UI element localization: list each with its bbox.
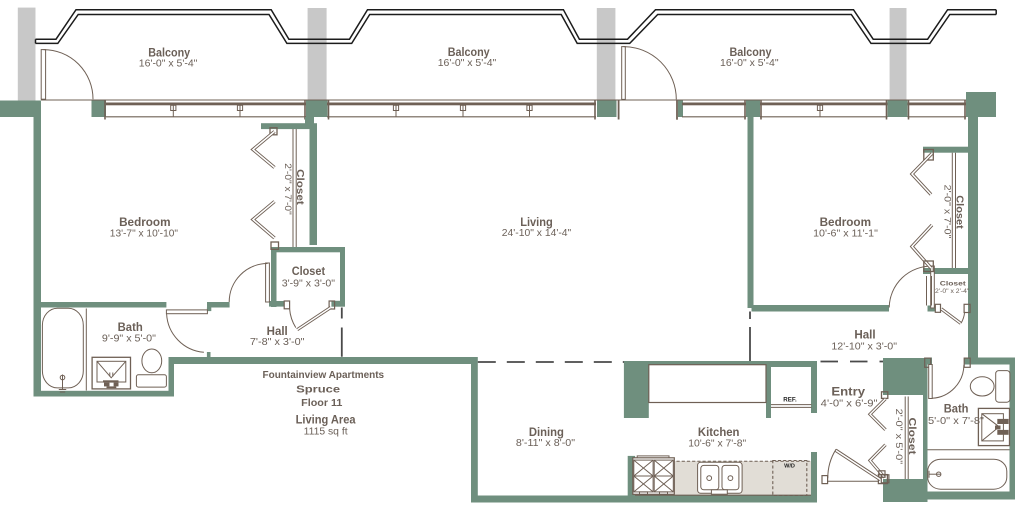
svg-text:5'-0" x 7'-8": 5'-0" x 7'-8" [928, 415, 984, 427]
svg-text:Closet: Closet [906, 418, 917, 456]
svg-text:Closet: Closet [294, 169, 305, 205]
svg-text:Living Area: Living Area [296, 413, 356, 427]
svg-text:1115 sq ft: 1115 sq ft [304, 427, 348, 438]
svg-text:24'-10" x 14'-4": 24'-10" x 14'-4" [502, 227, 572, 239]
svg-text:3'-9" x 3'-0": 3'-9" x 3'-0" [282, 277, 336, 289]
svg-text:Closet: Closet [940, 280, 967, 287]
svg-text:Floor 11: Floor 11 [301, 398, 343, 409]
svg-text:7'-8" x 3'-0": 7'-8" x 3'-0" [250, 336, 305, 348]
svg-text:2'-0" x 7'-0": 2'-0" x 7'-0" [943, 185, 953, 239]
svg-text:10'-6" x 7'-8": 10'-6" x 7'-8" [688, 438, 746, 450]
svg-text:Fountainview Apartments: Fountainview Apartments [263, 370, 385, 381]
svg-text:16'-0" x 5'-4": 16'-0" x 5'-4" [720, 57, 779, 69]
svg-text:8'-11" x 8'-0": 8'-11" x 8'-0" [516, 437, 575, 449]
svg-text:2'-0" x 2'-4": 2'-0" x 2'-4" [935, 288, 969, 295]
svg-text:16'-0" x 5'-4": 16'-0" x 5'-4" [139, 57, 198, 69]
svg-text:12'-10" x 3'-0": 12'-10" x 3'-0" [831, 340, 897, 352]
svg-text:REF.: REF. [783, 397, 797, 404]
svg-text:10'-6" x 11'-1": 10'-6" x 11'-1" [813, 228, 878, 240]
svg-text:13'-7" x 10'-10": 13'-7" x 10'-10" [110, 227, 178, 239]
svg-text:Spruce: Spruce [296, 384, 341, 395]
svg-text:2'-0" x 5'-0": 2'-0" x 5'-0" [894, 409, 904, 465]
svg-text:9'-9" x 5'-0": 9'-9" x 5'-0" [102, 333, 156, 345]
svg-text:Bath: Bath [944, 402, 969, 416]
svg-text:Closet: Closet [292, 264, 325, 278]
svg-text:Closet: Closet [953, 195, 964, 229]
svg-text:2'-0" x 7'-0": 2'-0" x 7'-0" [283, 163, 293, 214]
svg-text:W/D: W/D [784, 464, 795, 470]
svg-text:16'-0" x 5'-4": 16'-0" x 5'-4" [438, 57, 497, 69]
svg-text:4'-0" x 6'-9": 4'-0" x 6'-9" [821, 397, 878, 409]
